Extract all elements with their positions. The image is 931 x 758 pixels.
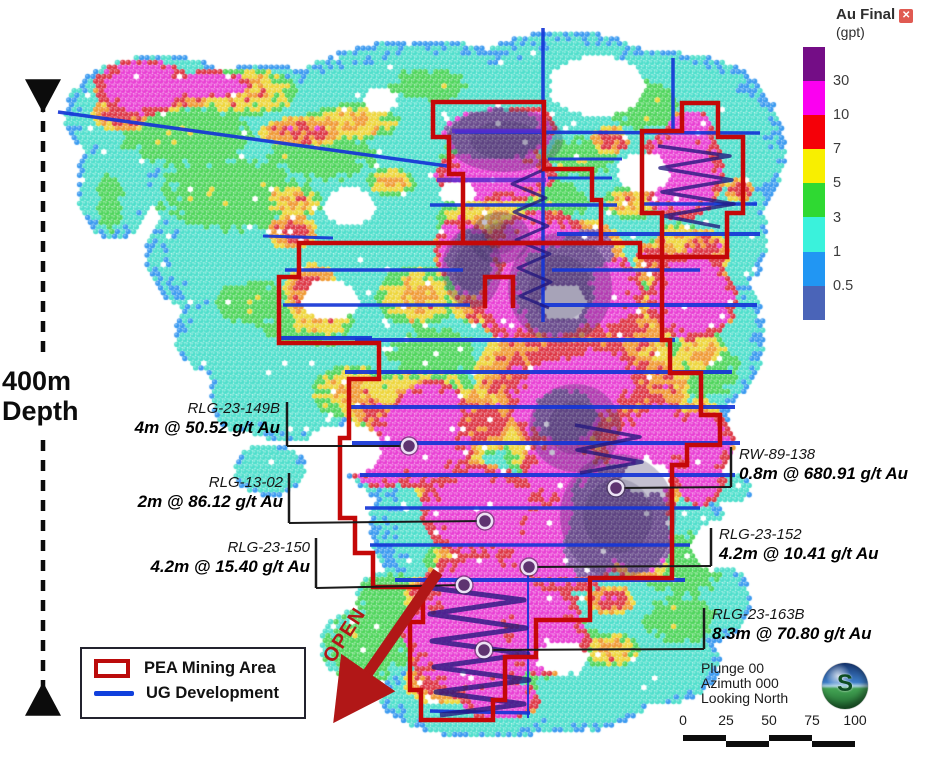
drillhole-id: RLG-23-152 [719, 526, 879, 543]
drillhole-marker[interactable] [402, 439, 416, 453]
drillhole-id: RW-89-138 [739, 446, 908, 463]
drillhole-marker[interactable] [609, 481, 623, 495]
depth-value: 400m [2, 366, 86, 396]
ug-line [58, 112, 447, 166]
callout-RW-89-138: RW-89-1380.8m @ 680.91 g/t Au [739, 446, 908, 484]
colorbar-segment [803, 217, 825, 251]
pea-outline [485, 277, 513, 308]
colorbar-segment [803, 252, 825, 286]
map-overlay [0, 0, 931, 758]
drillhole-id: RLG-23-150 [150, 539, 310, 556]
open-arrow [352, 572, 438, 696]
plunge-text: Plunge 00 [701, 661, 788, 676]
ug-line [263, 236, 333, 238]
compass-orb[interactable]: S [822, 663, 868, 709]
callout-leader [529, 566, 711, 567]
scale-bar-number: 25 [718, 712, 734, 728]
drillhole-id: RLG-23-163B [712, 606, 872, 623]
decline-ramp [512, 170, 551, 308]
colorbar-segment [803, 47, 825, 81]
callout-leader [289, 521, 485, 523]
scale-bar-segment [683, 735, 726, 741]
drillhole-marker[interactable] [457, 578, 471, 592]
drillhole-marker[interactable] [522, 560, 536, 574]
colorbar-tick-label: 10 [833, 107, 849, 123]
azimuth-text: Azimuth 000 [701, 676, 788, 691]
callout-RLG-23-152: RLG-23-1524.2m @ 10.41 g/t Au [719, 526, 879, 564]
drillhole-interval: 2m @ 86.12 g/t Au [138, 492, 283, 512]
grade-colorbar [803, 47, 825, 320]
legend-row-pea: PEA Mining Area [94, 659, 294, 678]
colorbar-tick-label: 0.5 [833, 278, 853, 294]
legend-row-ug: UG Development [94, 684, 294, 703]
drillhole-interval: 4.2m @ 10.41 g/t Au [719, 544, 879, 564]
callout-leader [616, 487, 731, 488]
colorbar-tick-label: 5 [833, 175, 841, 191]
section-view: Au Final✕ (gpt) 301075310.5 400m Depth R… [0, 0, 931, 758]
colorbar-segment [803, 81, 825, 115]
callout-RLG-23-150: RLG-23-1504.2m @ 15.40 g/t Au [150, 539, 310, 577]
colorbar-segment [803, 115, 825, 149]
decline-ramp [658, 146, 734, 227]
decline-ramps [430, 146, 734, 715]
scale-bar-segment [812, 741, 855, 747]
compass-letter: S [822, 670, 868, 698]
grade-legend-header: Au Final✕ (gpt) [836, 6, 913, 40]
depth-scale-label: 400m Depth [2, 366, 86, 426]
drillhole-interval: 0.8m @ 680.91 g/t Au [739, 464, 908, 484]
scale-bar-number: 50 [761, 712, 777, 728]
scale-bar-number: 0 [679, 712, 687, 728]
drillhole-id: RLG-13-02 [138, 474, 283, 491]
pea-area-label: PEA Mining Area [144, 659, 276, 678]
view-orientation-info: Plunge 00 Azimuth 000 Looking North [701, 661, 788, 706]
colorbar-segment [803, 286, 825, 320]
grade-legend-unit: (gpt) [836, 24, 913, 40]
ug-line-swatch [94, 691, 134, 696]
scale-bar-number: 100 [843, 712, 866, 728]
looking-text: Looking North [701, 691, 788, 706]
drillhole-marker[interactable] [478, 514, 492, 528]
colorbar-segment [803, 183, 825, 217]
pea-outline [433, 102, 601, 243]
colorbar-tick-label: 7 [833, 141, 841, 157]
depth-word: Depth [2, 396, 86, 426]
drillhole-marker[interactable] [477, 643, 491, 657]
scale-bar-segment [769, 735, 812, 741]
map-legend-box: PEA Mining Area UG Development [80, 647, 306, 719]
decline-ramp [575, 425, 642, 473]
ug-line-label: UG Development [146, 684, 279, 703]
colorbar-tick-label: 1 [833, 244, 841, 260]
scale-bar-segment [726, 741, 769, 747]
drillhole-id: RLG-23-149B [135, 400, 280, 417]
callout-RLG-23-149B: RLG-23-149B4m @ 50.52 g/t Au [135, 400, 280, 438]
colorbar-tick-label: 3 [833, 210, 841, 226]
drillhole-interval: 8.3m @ 70.80 g/t Au [712, 624, 872, 644]
drillhole-interval: 4m @ 50.52 g/t Au [135, 418, 280, 438]
callout-RLG-23-163B: RLG-23-163B8.3m @ 70.80 g/t Au [712, 606, 872, 644]
scale-bar-number: 75 [804, 712, 820, 728]
pea-area-swatch [94, 659, 130, 678]
callout-leader [484, 649, 704, 650]
colorbar-tick-label: 30 [833, 73, 849, 89]
close-icon[interactable]: ✕ [899, 9, 913, 23]
drillhole-interval: 4.2m @ 15.40 g/t Au [150, 557, 310, 577]
grade-legend-title: Au Final [836, 6, 895, 23]
callout-RLG-13-02: RLG-13-022m @ 86.12 g/t Au [138, 474, 283, 512]
colorbar-segment [803, 149, 825, 183]
open-direction-arrow [352, 572, 438, 696]
